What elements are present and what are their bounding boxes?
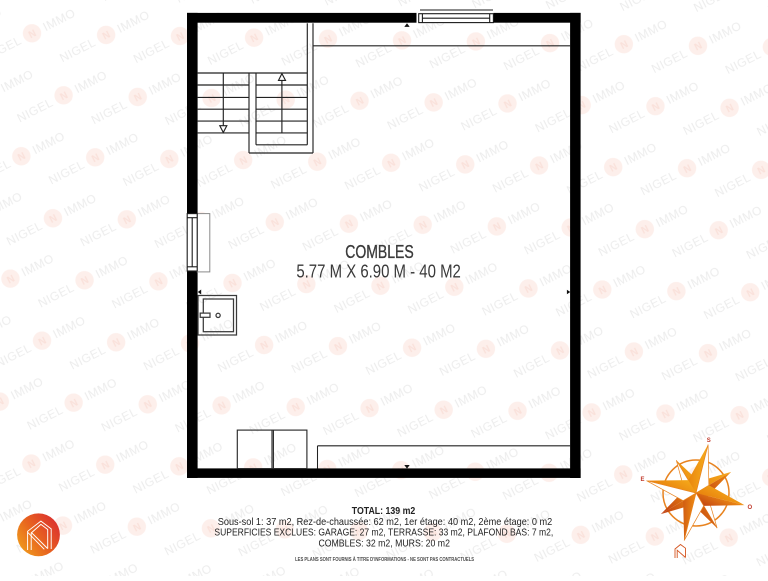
- svg-text:5.77 M X 6.90 M - 40 M2: 5.77 M X 6.90 M - 40 M2: [296, 262, 461, 282]
- svg-text:O: O: [747, 505, 752, 511]
- svg-text:COMBLES: COMBLES: [345, 242, 414, 262]
- svg-text:LES PLANS SONT FOURNIS À TITRE: LES PLANS SONT FOURNIS À TITRE D'INFORMA…: [295, 556, 474, 563]
- svg-text:E: E: [640, 477, 644, 483]
- svg-text:S: S: [707, 438, 711, 444]
- svg-text:COMBLES: 32 m2, MURS: 20 m2: COMBLES: 32 m2, MURS: 20 m2: [318, 538, 450, 550]
